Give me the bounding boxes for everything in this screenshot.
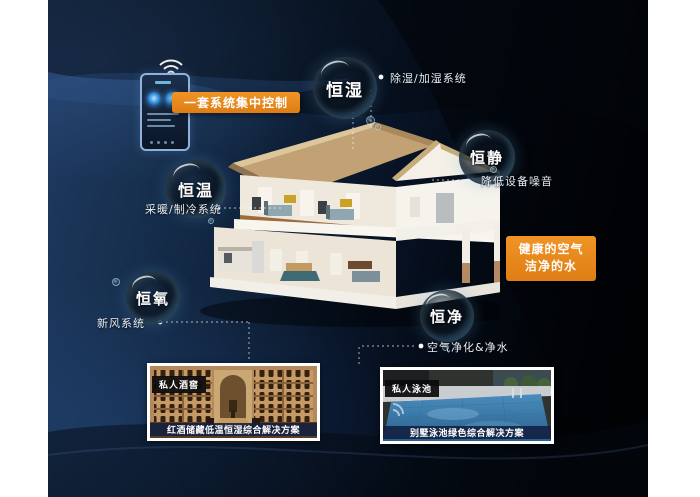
panel-dial-left <box>147 92 161 106</box>
label-quiet-system: 降低设备噪音 <box>481 173 553 189</box>
panel-readout <box>147 125 175 127</box>
bubble-humidity: 恒湿 <box>313 57 377 119</box>
label-purity-system: 空气净化&净水 <box>427 339 509 355</box>
wine-card-caption: 红酒储藏低温恒湿综合解决方案 <box>150 423 317 436</box>
panel-title-bar <box>155 81 171 84</box>
label-humidity-system: 除湿/加湿系统 <box>390 70 467 86</box>
mini-bubble <box>490 166 497 173</box>
infographic-poster: { "control": { "callout_label": "一套系统集中控… <box>0 0 700 497</box>
bubble-purity: 恒净 <box>420 290 474 342</box>
healthy-air-clean-water-box: 健康的空气 洁净的水 <box>506 236 596 281</box>
mini-bubble <box>112 278 120 286</box>
diagram-canvas: 一套系统集中控制 恒湿 恒静 恒温 恒氧 恒净 除湿/加湿系统 降低设备噪音 采… <box>48 0 648 497</box>
panel-readout <box>147 113 179 115</box>
panel-readout <box>147 119 171 121</box>
mini-bubble <box>208 218 214 224</box>
pool-card-tag: 私人泳池 <box>385 380 439 397</box>
highlight-line-2: 洁净的水 <box>525 258 577 275</box>
highlight-line-1: 健康的空气 <box>518 241 583 258</box>
mini-bubble <box>366 116 375 125</box>
wine-card-tag: 私人酒窖 <box>152 376 206 393</box>
label-temperature-system: 采暖/制冷系统 <box>145 201 222 217</box>
mini-bubble <box>375 124 381 130</box>
panel-buttons <box>150 141 176 144</box>
label-oxygen-system: 新风系统 <box>97 315 145 331</box>
pool-card: 私人泳池 别墅泳池绿色综合解决方案 <box>380 367 554 444</box>
central-control-callout: 一套系统集中控制 <box>172 92 300 113</box>
pool-card-caption: 别墅泳池绿色综合解决方案 <box>383 426 551 439</box>
wine-cellar-card: 私人酒窖 红酒储藏低温恒湿综合解决方案 <box>147 363 320 441</box>
